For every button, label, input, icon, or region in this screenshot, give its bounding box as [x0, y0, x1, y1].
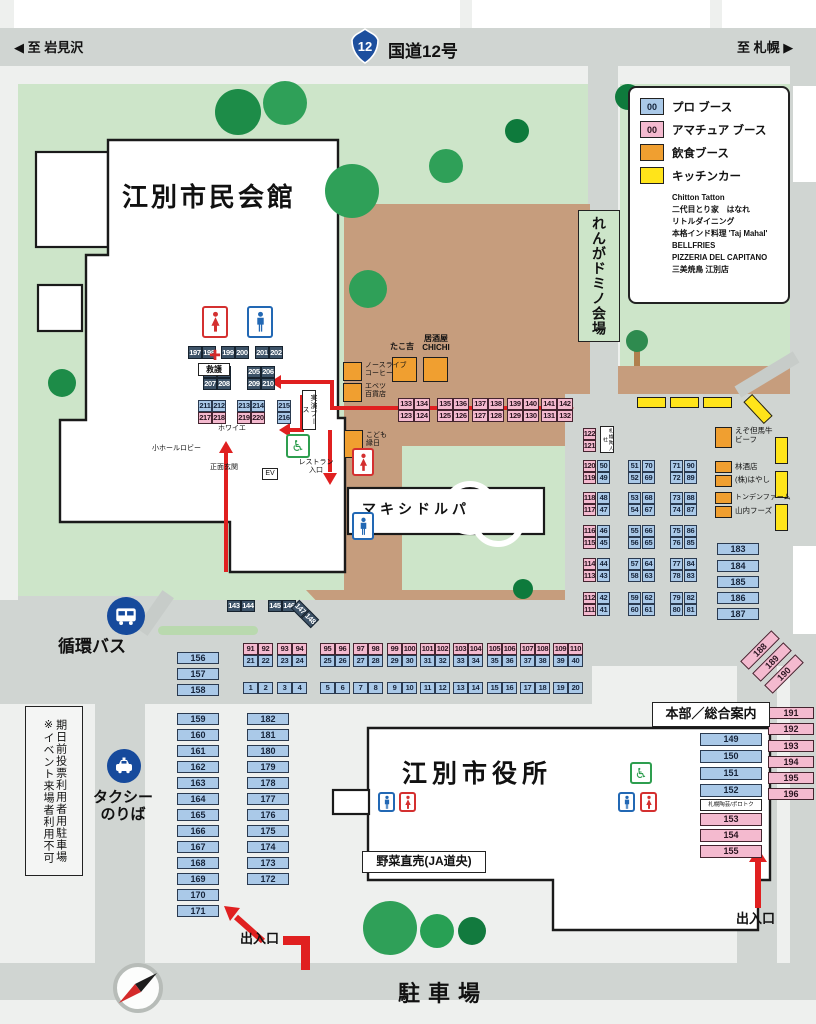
booth-89: 89 — [684, 472, 697, 484]
booth-7: 7 — [353, 682, 368, 694]
first-aid-cross-icon: ✚ — [208, 348, 222, 362]
booth-90: 90 — [684, 460, 697, 472]
booth-173: 173 — [247, 857, 289, 869]
map-label: 札幌陶人社 — [600, 426, 614, 453]
booth-212: 212 — [212, 400, 226, 412]
booth-13: 13 — [453, 682, 468, 694]
booth-3: 3 — [277, 682, 292, 694]
booth-34: 34 — [468, 655, 483, 667]
booth-40: 40 — [568, 655, 583, 667]
booth-27: 27 — [353, 655, 368, 667]
booth-45: 45 — [597, 537, 610, 549]
legend-vendor-name: BELLFRIES — [672, 240, 780, 252]
bus-stop-icon — [107, 597, 145, 635]
map-label: 出入口 — [736, 912, 775, 927]
booth-78: 78 — [670, 570, 683, 582]
booth-56: 56 — [628, 537, 641, 549]
booth-28: 28 — [368, 655, 383, 667]
booth-83: 83 — [684, 570, 697, 582]
legend-swatch-p: 00 — [640, 98, 664, 115]
booth-94: 94 — [292, 643, 307, 655]
booth-199: 199 — [221, 346, 235, 359]
booth-208: 208 — [217, 378, 231, 390]
booth-156: 156 — [177, 652, 219, 664]
tree-icon — [513, 579, 533, 599]
booth-162: 162 — [177, 761, 219, 773]
map-label: 出入口 — [240, 932, 279, 947]
booth-206: 206 — [261, 366, 275, 378]
booth-42: 42 — [597, 592, 610, 604]
booth-130: 130 — [523, 410, 539, 422]
tree-icon — [458, 917, 486, 945]
booth-60: 60 — [628, 604, 641, 616]
booth-51: 51 — [628, 460, 641, 472]
direction-east-label: 至 札幌 ▶ — [737, 37, 793, 56]
booth-87: 87 — [684, 504, 697, 516]
booth-12: 12 — [435, 682, 450, 694]
booth-25: 25 — [320, 655, 335, 667]
booth-165: 165 — [177, 809, 219, 821]
booth-217: 217 — [198, 412, 212, 424]
map-label: ホワイエ — [218, 425, 246, 433]
booth-68: 68 — [642, 492, 655, 504]
legend-item: 00プロ ブース — [640, 98, 780, 115]
tree-icon — [48, 369, 76, 397]
booth-1: 1 — [243, 682, 258, 694]
restroom-men-icon — [352, 512, 374, 540]
booth-75: 75 — [670, 525, 683, 537]
booth-210: 210 — [261, 378, 275, 390]
booth-86: 86 — [684, 525, 697, 537]
booth-158: 158 — [177, 684, 219, 696]
booth-58: 58 — [628, 570, 641, 582]
booth-184: 184 — [717, 560, 759, 572]
booth-136: 136 — [453, 398, 469, 410]
booth-74: 74 — [670, 504, 683, 516]
map-region — [472, 0, 710, 28]
map-label: トンデンファーム — [735, 494, 791, 502]
food-booth — [715, 492, 732, 504]
map-label: ノースライブ コーヒー — [365, 362, 407, 378]
booth-200: 200 — [235, 346, 249, 359]
booth-123: 123 — [398, 410, 414, 422]
direction-west-label: ◀ 至 岩見沢 — [14, 37, 83, 56]
booth-47: 47 — [597, 504, 610, 516]
booth-211: 211 — [198, 400, 212, 412]
legend-swatch-k — [640, 167, 664, 184]
booth-202: 202 — [269, 346, 283, 359]
booth-72: 72 — [670, 472, 683, 484]
legend-item-label: プロ ブース — [672, 99, 732, 115]
booth-38: 38 — [535, 655, 550, 667]
booth-133: 133 — [398, 398, 414, 410]
booth-220: 220 — [251, 412, 265, 424]
map-label: マキシドルパ — [362, 501, 470, 517]
booth-46: 46 — [597, 525, 610, 537]
booth-15: 15 — [487, 682, 502, 694]
booth-88: 88 — [684, 492, 697, 504]
booth-151: 151 — [700, 767, 762, 780]
map-label: こども 縁日 — [366, 432, 387, 448]
wheelchair-access-icon: ♿ — [630, 762, 652, 784]
booth-144: 144 — [241, 600, 255, 612]
map-label: レストラン 入口 — [298, 459, 334, 475]
booth-43: 43 — [597, 570, 610, 582]
food-booth — [343, 362, 362, 381]
map-label: 札幌陶芸/ポロトク — [700, 799, 762, 811]
booth-39: 39 — [553, 655, 568, 667]
food-booth — [343, 383, 362, 402]
booth-63: 63 — [642, 570, 655, 582]
booth-129: 129 — [507, 410, 523, 422]
booth-65: 65 — [642, 537, 655, 549]
map-label: 居酒屋 CHICHI — [421, 334, 451, 352]
kitchen-car-booth — [670, 397, 699, 408]
booth-32: 32 — [435, 655, 450, 667]
food-booth — [715, 461, 732, 473]
booth-36: 36 — [502, 655, 517, 667]
booth-143: 143 — [227, 600, 241, 612]
booth-103: 103 — [453, 643, 468, 655]
booth-57: 57 — [628, 558, 641, 570]
booth-127: 127 — [472, 410, 488, 422]
booth-18: 18 — [535, 682, 550, 694]
map-region — [793, 546, 816, 634]
booth-69: 69 — [642, 472, 655, 484]
booth-171: 171 — [177, 905, 219, 917]
booth-53: 53 — [628, 492, 641, 504]
route-name-label: 国道12号 — [388, 37, 458, 62]
restroom-men-icon — [247, 306, 273, 338]
city-hall-entrance-notch — [333, 790, 369, 814]
booth-201: 201 — [255, 346, 269, 359]
booth-31: 31 — [420, 655, 435, 667]
booth-104: 104 — [468, 643, 483, 655]
map-label: 本部／総合案内 — [652, 702, 770, 727]
booth-100: 100 — [402, 643, 417, 655]
booth-169: 169 — [177, 873, 219, 885]
booth-185: 185 — [717, 576, 759, 588]
booth-120: 120 — [583, 460, 596, 472]
booth-161: 161 — [177, 745, 219, 757]
legend-item: キッチンカー — [640, 167, 780, 184]
booth-152: 152 — [700, 784, 762, 797]
booth-141: 141 — [541, 398, 557, 410]
tree-icon — [626, 330, 648, 352]
booth-164: 164 — [177, 793, 219, 805]
booth-97: 97 — [353, 643, 368, 655]
tree-icon — [215, 89, 261, 135]
booth-160: 160 — [177, 729, 219, 741]
booth-49: 49 — [597, 472, 610, 484]
booth-207: 207 — [203, 378, 217, 390]
map-region — [793, 86, 816, 182]
booth-186: 186 — [717, 592, 759, 604]
booth-98: 98 — [368, 643, 383, 655]
booth-153: 153 — [700, 813, 762, 826]
map-label: EV — [262, 468, 278, 480]
booth-23: 23 — [277, 655, 292, 667]
booth-59: 59 — [628, 592, 641, 604]
kitchen-car-booth — [775, 504, 788, 531]
legend-vendor-name: 二代目とり家 はなれ — [672, 204, 780, 216]
map-label: 循環バス — [58, 637, 126, 657]
booth-66: 66 — [642, 525, 655, 537]
booth-41: 41 — [597, 604, 610, 616]
booth-214: 214 — [251, 400, 265, 412]
booth-81: 81 — [684, 604, 697, 616]
booth-108: 108 — [535, 643, 550, 655]
booth-176: 176 — [247, 809, 289, 821]
booth-50: 50 — [597, 460, 610, 472]
map-label: (株)はやし — [735, 476, 770, 485]
booth-4: 4 — [292, 682, 307, 694]
booth-119: 119 — [583, 472, 596, 484]
booth-180: 180 — [247, 745, 289, 757]
booth-187: 187 — [717, 608, 759, 620]
booth-52: 52 — [628, 472, 641, 484]
booth-26: 26 — [335, 655, 350, 667]
map-label: エベツ 百貨店 — [365, 383, 386, 399]
legend-vendor-name: PIZZERIA DEL CAPITANO — [672, 252, 780, 264]
booth-95: 95 — [320, 643, 335, 655]
tree-icon — [505, 119, 529, 143]
booth-35: 35 — [487, 655, 502, 667]
booth-6: 6 — [335, 682, 350, 694]
booth-76: 76 — [670, 537, 683, 549]
booth-172: 172 — [247, 873, 289, 885]
legend-swatch-a: 00 — [640, 121, 664, 138]
booth-205: 205 — [247, 366, 261, 378]
booth-54: 54 — [628, 504, 641, 516]
booth-163: 163 — [177, 777, 219, 789]
booth-155: 155 — [700, 845, 762, 858]
booth-218: 218 — [212, 412, 226, 424]
booth-142: 142 — [557, 398, 573, 410]
restroom-men-icon — [618, 792, 635, 812]
booth-128: 128 — [488, 410, 504, 422]
food-booth — [715, 475, 732, 487]
booth-71: 71 — [670, 460, 683, 472]
booth-175: 175 — [247, 825, 289, 837]
legend-items: 00プロ ブース00アマチュア ブース飲食ブースキッチンカー — [640, 98, 780, 184]
restroom-women-icon — [399, 792, 416, 812]
legend-panel: 00プロ ブース00アマチュア ブース飲食ブースキッチンカー Chitton T… — [628, 86, 790, 304]
booth-181: 181 — [247, 729, 289, 741]
restroom-men-icon — [378, 792, 395, 812]
booth-110: 110 — [568, 643, 583, 655]
booth-125: 125 — [437, 410, 453, 422]
booth-121: 121 — [583, 440, 596, 452]
booth-99: 99 — [387, 643, 402, 655]
booth-30: 30 — [402, 655, 417, 667]
booth-116: 116 — [583, 525, 596, 537]
booth-55: 55 — [628, 525, 641, 537]
map-label: 駐車場 — [398, 981, 488, 1006]
booth-10: 10 — [402, 682, 417, 694]
booth-70: 70 — [642, 460, 655, 472]
booth-109: 109 — [553, 643, 568, 655]
legend-item-label: アマチュア ブース — [672, 122, 766, 138]
venue-map: 1971981992002012022032042072082052062092… — [0, 0, 816, 1024]
tree-icon — [263, 81, 307, 125]
wheelchair-access-icon: ♿ — [286, 434, 310, 458]
legend-vendor-name: リトルダイニング — [672, 216, 780, 228]
map-label: 実演ブース — [302, 390, 316, 430]
booth-20: 20 — [568, 682, 583, 694]
booth-107: 107 — [520, 643, 535, 655]
tree-icon — [420, 914, 454, 948]
booth-149: 149 — [700, 733, 762, 746]
map-region — [790, 66, 816, 965]
legend-vendor-list: Chitton Tatton二代目とり家 はなれリトルダイニング本格インド料理 … — [672, 192, 780, 277]
legend-vendor-name: Chitton Tatton — [672, 192, 780, 204]
booth-196: 196 — [768, 788, 814, 800]
booth-67: 67 — [642, 504, 655, 516]
booth-140: 140 — [523, 398, 539, 410]
booth-178: 178 — [247, 777, 289, 789]
booth-131: 131 — [541, 410, 557, 422]
tree-icon — [325, 164, 379, 218]
restroom-women-icon — [640, 792, 657, 812]
legend-swatch-f — [640, 144, 664, 161]
booth-174: 174 — [247, 841, 289, 853]
booth-150: 150 — [700, 750, 762, 763]
map-region — [158, 626, 258, 635]
booth-157: 157 — [177, 668, 219, 680]
booth-167: 167 — [177, 841, 219, 853]
map-label: 正面玄関 — [210, 464, 238, 472]
booth-106: 106 — [502, 643, 517, 655]
food-booth — [715, 427, 732, 448]
map-label: 山内フーズ — [735, 507, 772, 516]
booth-91: 91 — [243, 643, 258, 655]
map-label: たこ吉 — [390, 342, 414, 351]
restroom-women-icon — [352, 448, 374, 476]
map-label: 小ホールロビー — [152, 445, 201, 453]
booth-111: 111 — [583, 604, 596, 616]
map-region — [722, 0, 816, 28]
booth-61: 61 — [642, 604, 655, 616]
booth-77: 77 — [670, 558, 683, 570]
booth-114: 114 — [583, 558, 596, 570]
booth-113: 113 — [583, 570, 596, 582]
booth-9: 9 — [387, 682, 402, 694]
booth-11: 11 — [420, 682, 435, 694]
booth-29: 29 — [387, 655, 402, 667]
booth-118: 118 — [583, 492, 596, 504]
booth-216: 216 — [277, 412, 291, 424]
booth-197: 197 — [188, 346, 202, 359]
map-label: 野菜直売(JA道央) — [362, 851, 486, 873]
booth-102: 102 — [435, 643, 450, 655]
map-label: タクシー のりば — [86, 789, 160, 824]
legend-item: 00アマチュア ブース — [640, 121, 780, 138]
booth-213: 213 — [237, 400, 251, 412]
booth-170: 170 — [177, 889, 219, 901]
booth-112: 112 — [583, 592, 596, 604]
booth-182: 182 — [247, 713, 289, 725]
booth-177: 177 — [247, 793, 289, 805]
restroom-women-icon — [202, 306, 228, 338]
booth-73: 73 — [670, 492, 683, 504]
booth-93: 93 — [277, 643, 292, 655]
booth-209: 209 — [247, 378, 261, 390]
food-booth — [715, 506, 732, 518]
tree-icon — [363, 901, 417, 955]
map-label: れんがドミノ会場 — [578, 210, 620, 342]
booth-80: 80 — [670, 604, 683, 616]
map-label: 林酒店 — [735, 463, 758, 472]
booth-62: 62 — [642, 592, 655, 604]
booth-219: 219 — [237, 412, 251, 424]
booth-33: 33 — [453, 655, 468, 667]
booth-122: 122 — [583, 428, 596, 440]
booth-138: 138 — [488, 398, 504, 410]
legend-item: 飲食ブース — [640, 144, 780, 161]
booth-92: 92 — [258, 643, 273, 655]
booth-134: 134 — [414, 398, 430, 410]
tree-icon — [349, 270, 387, 308]
booth-126: 126 — [453, 410, 469, 422]
kitchen-car-booth — [775, 437, 788, 464]
booth-16: 16 — [502, 682, 517, 694]
booth-22: 22 — [258, 655, 273, 667]
legend-item-label: 飲食ブース — [672, 145, 729, 161]
map-label: えぞ但馬牛 ビーフ — [735, 427, 773, 444]
route-12-shield-icon: 12 — [350, 28, 380, 64]
booth-44: 44 — [597, 558, 610, 570]
booth-168: 168 — [177, 857, 219, 869]
booth-85: 85 — [684, 537, 697, 549]
booth-48: 48 — [597, 492, 610, 504]
legend-vendor-name: 本格インド料理 'Taj Mahal' — [672, 228, 780, 240]
booth-84: 84 — [684, 558, 697, 570]
booth-24: 24 — [292, 655, 307, 667]
booth-166: 166 — [177, 825, 219, 837]
booth-117: 117 — [583, 504, 596, 516]
map-label: 江別市民会館 — [122, 183, 296, 213]
tree-icon — [429, 149, 463, 183]
food-booth — [423, 357, 448, 382]
booth-195: 195 — [768, 772, 814, 784]
booth-159: 159 — [177, 713, 219, 725]
booth-145: 145 — [268, 600, 282, 612]
booth-194: 194 — [768, 756, 814, 768]
booth-193: 193 — [768, 740, 814, 752]
booth-191: 191 — [768, 707, 814, 719]
map-label: 救護 — [198, 363, 230, 376]
booth-82: 82 — [684, 592, 697, 604]
kitchen-car-booth — [703, 397, 732, 408]
booth-64: 64 — [642, 558, 655, 570]
booth-101: 101 — [420, 643, 435, 655]
booth-192: 192 — [768, 723, 814, 735]
booth-105: 105 — [487, 643, 502, 655]
booth-17: 17 — [520, 682, 535, 694]
taxi-stand-icon — [107, 749, 141, 783]
kitchen-car-booth — [637, 397, 666, 408]
svg-text:12: 12 — [358, 39, 372, 54]
booth-14: 14 — [468, 682, 483, 694]
booth-115: 115 — [583, 537, 596, 549]
booth-179: 179 — [247, 761, 289, 773]
booth-132: 132 — [557, 410, 573, 422]
booth-8: 8 — [368, 682, 383, 694]
map-region — [14, 0, 460, 28]
booth-154: 154 — [700, 829, 762, 842]
legend-item-label: キッチンカー — [672, 168, 741, 184]
